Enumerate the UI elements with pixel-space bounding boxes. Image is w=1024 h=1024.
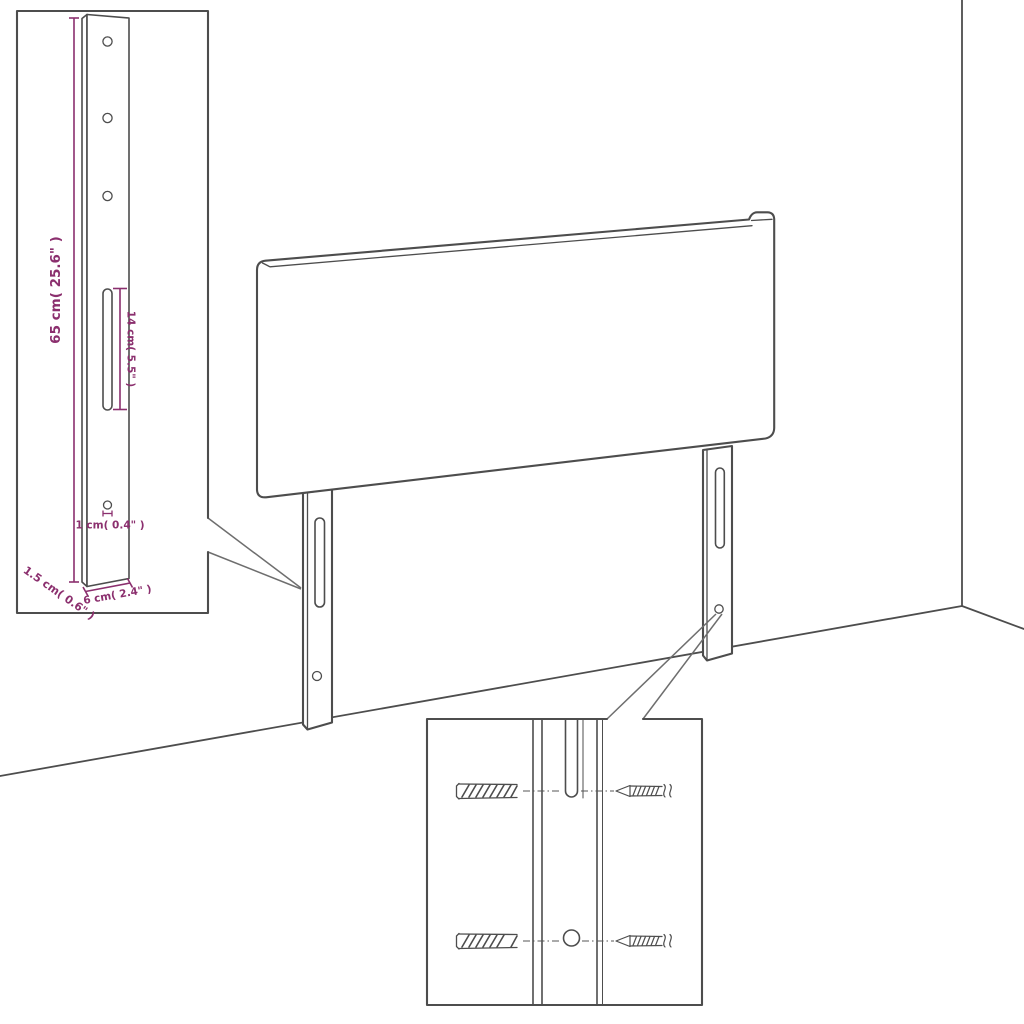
headboard-assembly-diagram: 65 cm( 25.6" ) 14 cm( 5.5" ) 1 cm( 0.4" … <box>0 0 1024 1024</box>
strip-hole <box>564 930 580 946</box>
left-mounting-leg <box>303 489 332 730</box>
right-leg-screw-hole <box>715 605 723 613</box>
headboard-panel <box>257 212 774 497</box>
detail-inset-mounting <box>427 719 702 1005</box>
dim-label-hole: 1 cm( 0.4" ) <box>75 520 144 532</box>
bracket-hole-middle <box>103 113 112 122</box>
floor-line-right <box>962 606 1024 629</box>
detail-inset-bracket: 65 cm( 25.6" ) 14 cm( 5.5" ) 1 cm( 0.4" … <box>17 11 208 623</box>
callout-line <box>643 614 722 719</box>
left-leg-screw-hole <box>313 672 322 681</box>
callout-line <box>208 518 301 588</box>
left-leg-slot <box>315 518 325 607</box>
right-mounting-leg <box>703 446 732 661</box>
dim-label-height: 65 cm( 25.6" ) <box>48 236 64 344</box>
panel-outline <box>257 212 774 497</box>
bracket-small-hole <box>104 501 112 509</box>
diagram-canvas: 65 cm( 25.6" ) 14 cm( 5.5" ) 1 cm( 0.4" … <box>0 0 1024 1024</box>
dim-label-slot: 14 cm( 5.5" ) <box>125 311 137 387</box>
inset-background <box>427 719 702 1005</box>
bracket-hole-lower <box>103 191 112 200</box>
bracket-slot <box>103 289 112 410</box>
right-leg-slot <box>716 468 725 548</box>
callout-line <box>208 552 301 589</box>
callout-lines-left-inset <box>208 518 301 589</box>
bracket-hole-top <box>103 37 112 46</box>
